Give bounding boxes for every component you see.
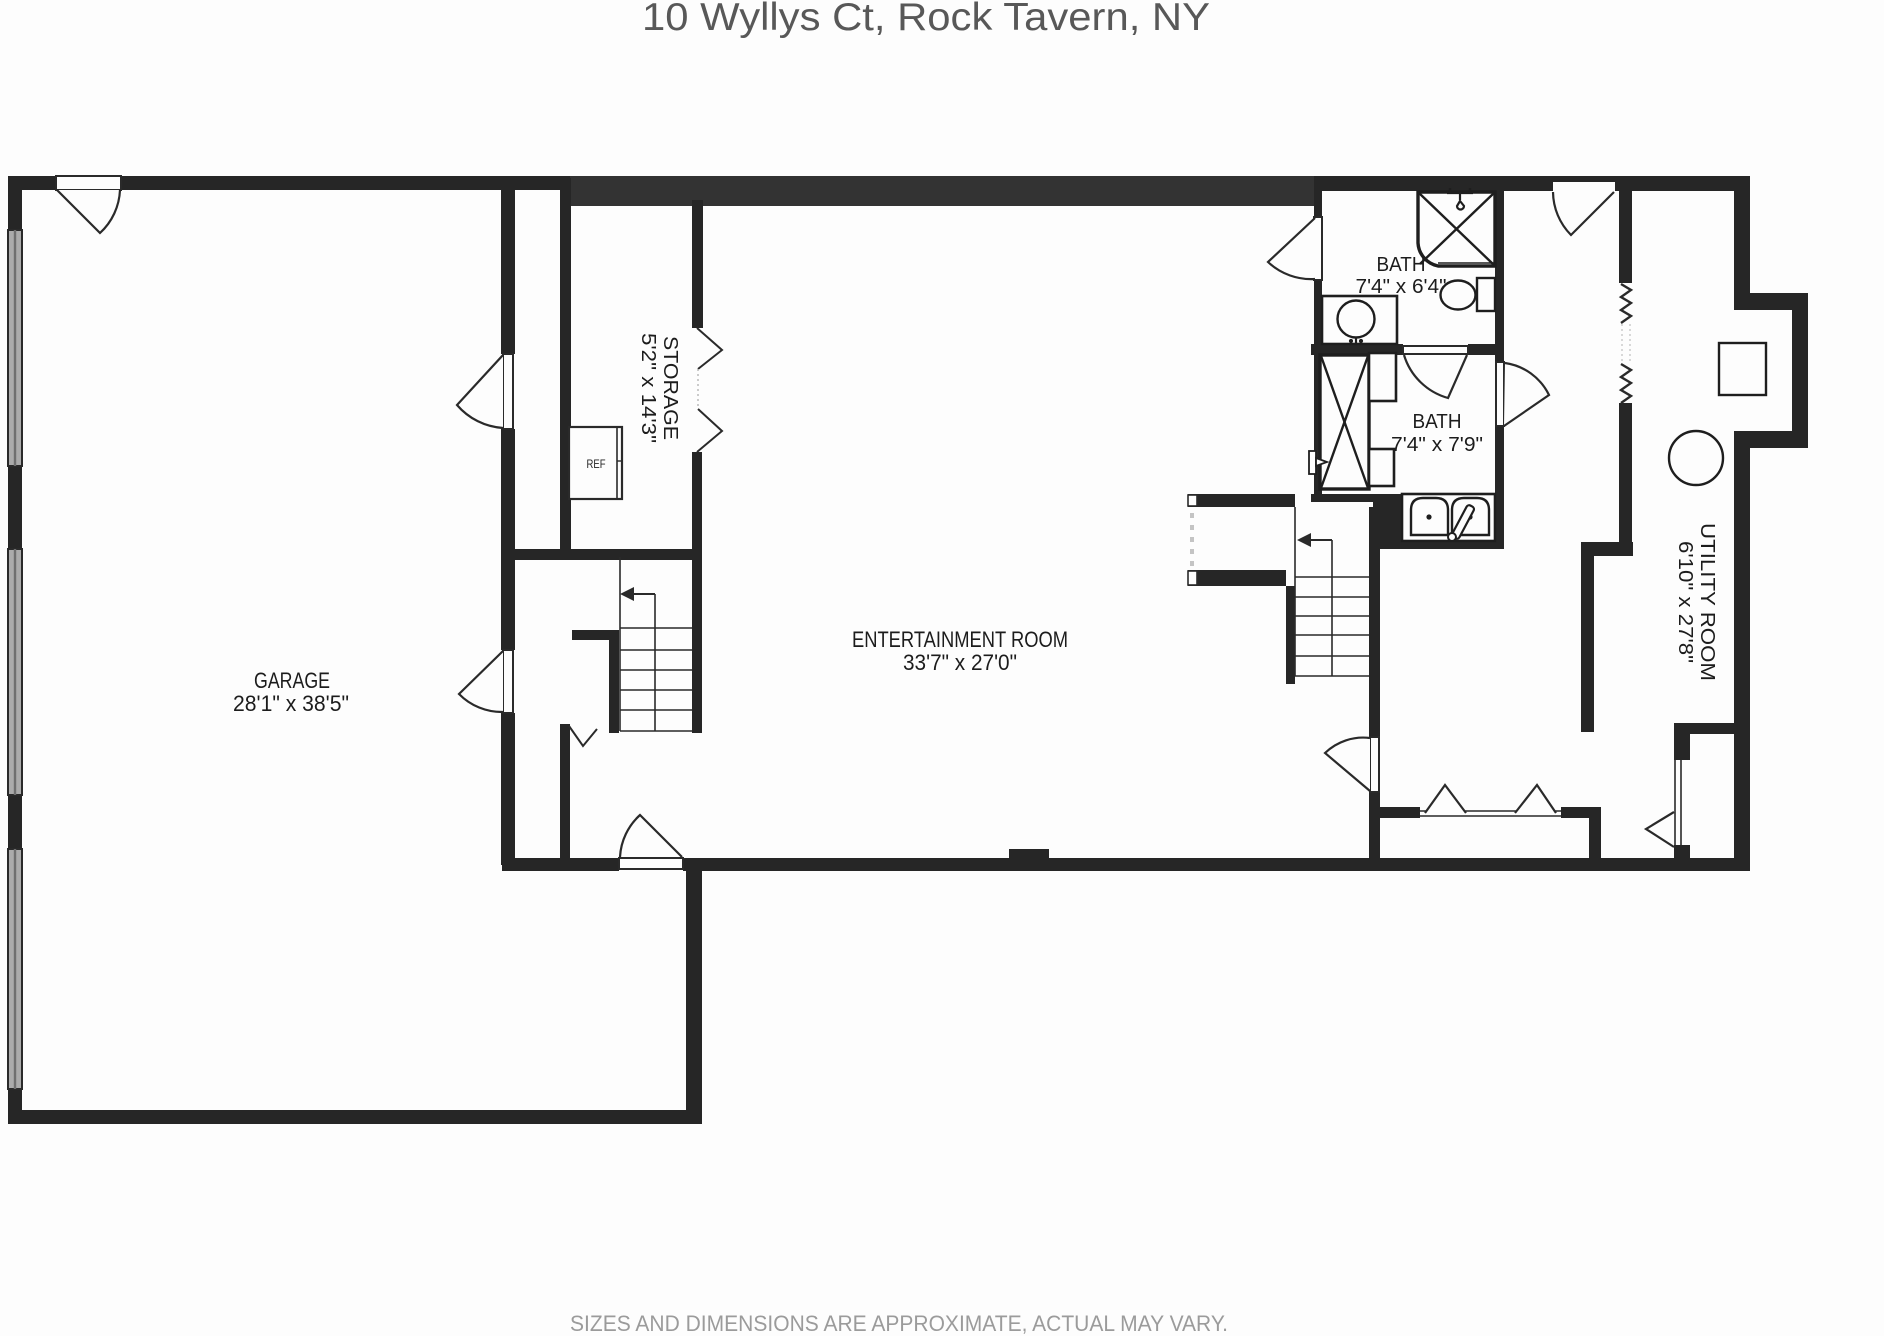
svg-text:REF: REF	[587, 457, 606, 471]
svg-text:UTILITY ROOM: UTILITY ROOM	[1696, 523, 1719, 681]
svg-text:7'4" x 7'9": 7'4" x 7'9"	[1391, 433, 1483, 456]
svg-text:6'10" x 27'8": 6'10" x 27'8"	[1674, 541, 1697, 663]
svg-text:33'7" x 27'0": 33'7" x 27'0"	[903, 650, 1017, 675]
svg-text:ENTERTAINMENT ROOM: ENTERTAINMENT ROOM	[852, 627, 1068, 652]
svg-text:10 Wyllys Ct, Rock Tavern, NY: 10 Wyllys Ct, Rock Tavern, NY	[642, 0, 1210, 39]
svg-text:5'2" x 14'3": 5'2" x 14'3"	[637, 333, 660, 443]
svg-text:GARAGE: GARAGE	[254, 668, 330, 693]
svg-text:SIZES AND DIMENSIONS ARE APPRO: SIZES AND DIMENSIONS ARE APPROXIMATE, AC…	[570, 1311, 1228, 1336]
svg-text:STORAGE: STORAGE	[659, 336, 682, 440]
svg-text:BATH: BATH	[1413, 410, 1462, 433]
svg-text:28'1" x 38'5": 28'1" x 38'5"	[233, 691, 349, 716]
svg-text:BATH: BATH	[1377, 253, 1426, 276]
svg-text:7'4" x 6'4": 7'4" x 6'4"	[1356, 275, 1447, 298]
